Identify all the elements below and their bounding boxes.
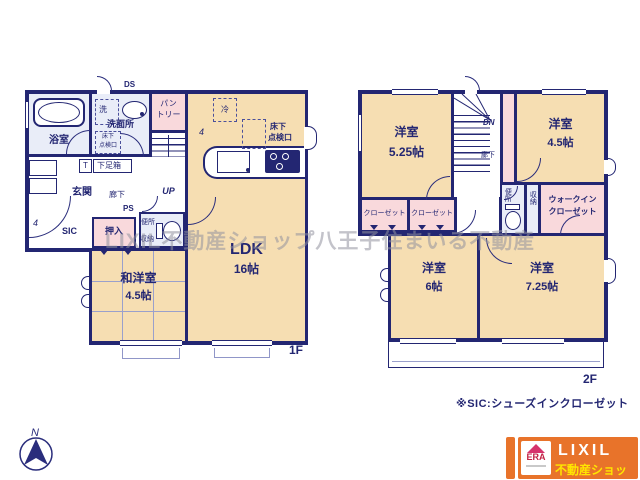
jw-room-label: 和洋室 (92, 272, 185, 285)
stairs-2f-winder (454, 94, 490, 120)
room-ne-side-window (608, 158, 616, 176)
floor-label-2f: 2F (583, 373, 597, 386)
washbasin-faucet (140, 112, 144, 116)
floor-label-1f: 1F (289, 344, 303, 357)
sic-label: SIC (62, 227, 77, 236)
jw-room-window (120, 340, 182, 346)
closet-strip-2f (503, 94, 514, 182)
era-divider (526, 465, 546, 467)
wic-label-l2: クローゼット (541, 208, 604, 216)
balcony-inner-line (392, 361, 600, 362)
dn-label: DN (483, 119, 495, 127)
bathroom-label: 浴室 (29, 136, 89, 147)
bathtub-inner (38, 102, 80, 123)
room-ne-size-label: 4.5帖 (517, 138, 604, 150)
compass-needle (24, 439, 48, 465)
room-sw-vent (380, 288, 388, 302)
dim-top-label: 4 (199, 128, 204, 137)
sic-note: ※SIC:シューズインクローゼット (456, 399, 629, 411)
compass-north-label: N (31, 427, 39, 439)
shoe-t-label: T (83, 162, 88, 170)
underfloor-access-ldk-l1: 床下 (270, 123, 286, 131)
stove-burner (282, 153, 289, 160)
dim-left-label: 4 (33, 219, 38, 228)
lixil-logo: ERA LIXIL 不動産ショップ (506, 437, 638, 479)
watermark-text: LIXIL不動産ショップ八王子住まいる不動産 (105, 225, 535, 255)
pantry-label-l2: トリー (152, 111, 185, 119)
shoe-box-label: 下足箱 (97, 162, 121, 170)
room-nw-size-label: 5.25帖 (362, 146, 451, 159)
storage-2f-label: 収納 (529, 191, 536, 205)
ldk-window (212, 340, 272, 346)
room-ne-window (542, 89, 586, 95)
ldk-side-door (308, 126, 317, 150)
fridge-label: 冷 (221, 106, 229, 114)
washer-label: 洗 (99, 106, 107, 114)
toilet-2f-tank (505, 204, 520, 210)
floor-plan-image: 洗 床下 点検口 T 下足箱 冷 床下 点検口 (0, 0, 640, 480)
logo-brand-sub: 不動産ショップ (555, 461, 638, 480)
toilet-2f-label: 便所 (504, 188, 511, 202)
jw-room-vent (81, 276, 89, 290)
era-badge: ERA (521, 441, 551, 475)
room-ne-label: 洋室 (517, 118, 604, 131)
balcony (388, 342, 604, 368)
underfloor-access-washroom-l2: 点検口 (95, 143, 121, 149)
terrace-step (122, 348, 180, 359)
bathroom-window (25, 102, 29, 128)
jw-room-size-label: 4.5帖 (92, 291, 185, 303)
logo-brand: LIXIL (558, 442, 612, 460)
room-se-side-window (608, 258, 616, 284)
room-nw-window (392, 89, 438, 95)
washbasin (122, 101, 147, 119)
hallway-2f-label: 廊下 (481, 152, 495, 159)
closet-b-label: クローゼット (410, 210, 454, 217)
room-sw-label: 洋室 (391, 262, 477, 275)
ps-label: PS (123, 205, 134, 213)
ldk-size-label: 16帖 (188, 263, 305, 276)
underfloor-access-ldk (242, 119, 266, 149)
pantry-label-l1: パン (152, 100, 185, 108)
stove-burner (270, 153, 277, 160)
room-se-label: 洋室 (480, 262, 604, 275)
up-label: UP (152, 187, 185, 196)
stove-burner (276, 163, 283, 170)
underfloor-access-washroom-l1: 床下 (95, 134, 121, 140)
entrance-label: 玄関 (52, 188, 112, 199)
underfloor-access-ldk-l2: 点検口 (268, 134, 292, 142)
room-sw-vent (380, 268, 388, 282)
terrace-step (214, 348, 270, 358)
logo-left-bar (506, 437, 515, 479)
sic-shelf-upper (29, 160, 57, 176)
room-nw-label: 洋室 (362, 126, 451, 139)
wic-label-l1: ウォークイン (541, 196, 604, 204)
closet-a-label: クローゼット (362, 210, 407, 217)
era-label: ERA (521, 453, 551, 463)
hallway-1f-label: 廊下 (109, 191, 125, 199)
room-se-size-label: 7.25帖 (480, 282, 604, 294)
tatami-line (92, 311, 185, 312)
kitchen-faucet (246, 168, 250, 172)
ds-label: DS (124, 81, 135, 89)
room-sw-size-label: 6帖 (391, 282, 477, 294)
logo-main: ERA LIXIL 不動産ショップ (518, 437, 638, 479)
back-door-arc (97, 76, 112, 91)
stairs-top-door-arc (465, 76, 480, 91)
compass-icon: N (13, 424, 59, 476)
washroom-label: 洗面所 (92, 120, 149, 129)
jw-room-vent (81, 294, 89, 308)
